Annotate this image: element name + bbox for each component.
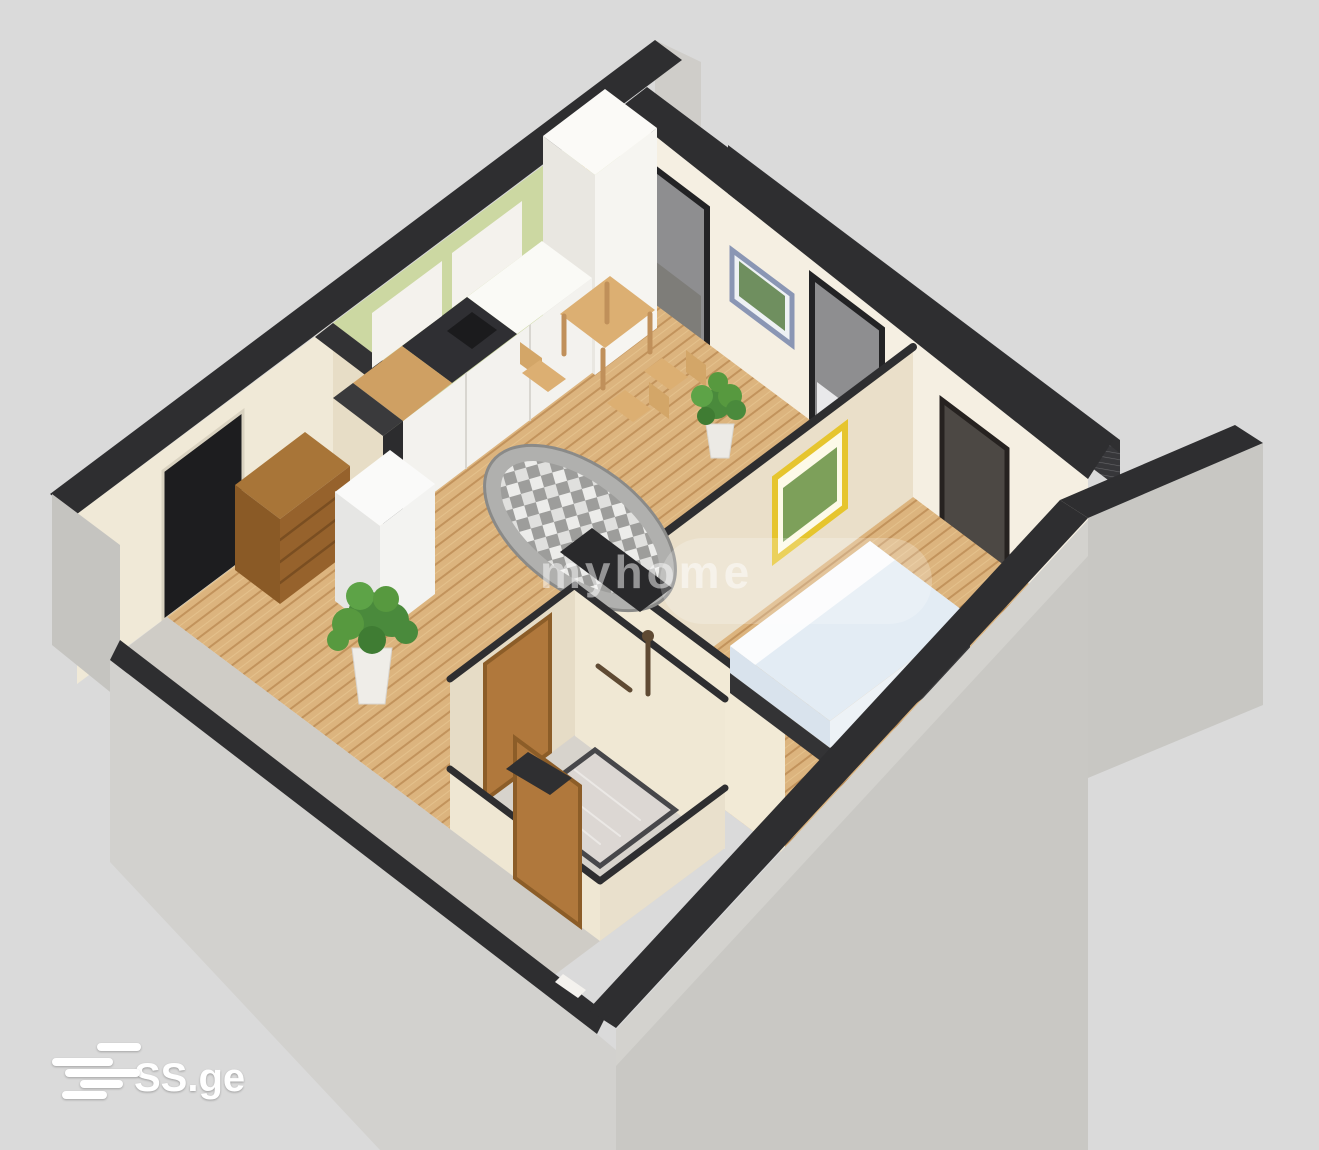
plant-1-pot — [352, 648, 392, 704]
ssge-logo-icon — [52, 1036, 141, 1099]
scene-root — [0, 0, 1319, 1150]
floor-plan-render: myhome SS.ge — [0, 0, 1319, 1150]
plant-2-pot — [706, 424, 734, 458]
ssge-logo-text: SS.ge — [134, 1058, 245, 1098]
ssge-logo-bar — [97, 1043, 141, 1051]
ssge-logo: SS.ge — [52, 1036, 245, 1099]
floor-plan-scene — [0, 0, 1319, 1150]
ssge-logo-bar — [80, 1080, 123, 1088]
ssge-logo-bar — [52, 1058, 113, 1066]
ssge-logo-bar — [65, 1069, 140, 1077]
shower-head — [642, 630, 654, 642]
ssge-logo-bar — [62, 1091, 107, 1099]
